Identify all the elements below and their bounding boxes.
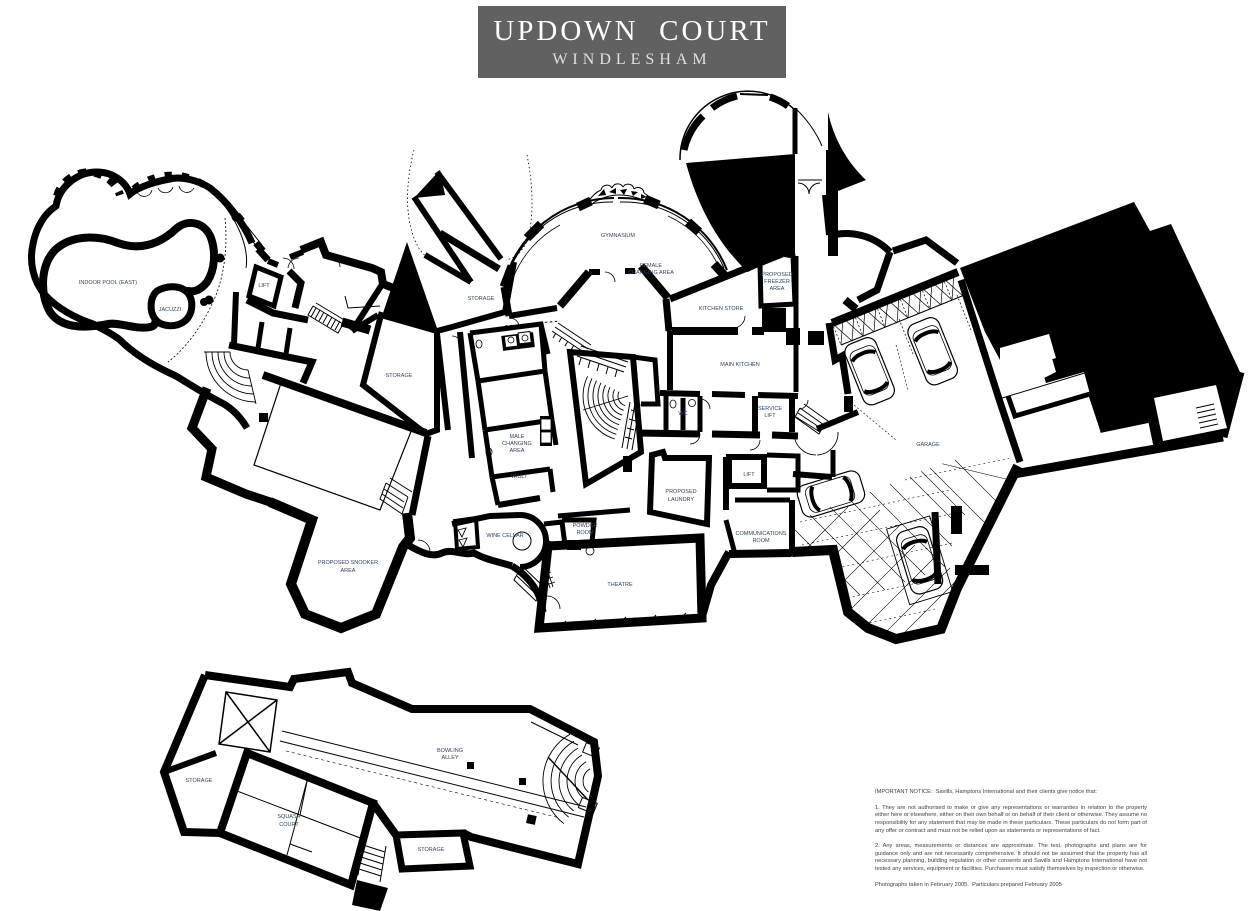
svg-text:VAULT: VAULT xyxy=(511,474,529,480)
svg-text:AREA: AREA xyxy=(770,286,785,292)
svg-text:STORAGE: STORAGE xyxy=(186,778,213,784)
svg-text:JACUZZI: JACUZZI xyxy=(159,307,182,313)
svg-text:POWDER: POWDER xyxy=(573,523,598,529)
svg-text:PROPOSED SNOOKER: PROPOSED SNOOKER xyxy=(318,560,378,566)
svg-text:WC: WC xyxy=(678,411,687,417)
svg-text:STORAGE: STORAGE xyxy=(468,296,495,302)
svg-text:THEATRE: THEATRE xyxy=(607,582,633,588)
svg-text:ROOM: ROOM xyxy=(752,538,770,544)
svg-text:CHANGING AREA: CHANGING AREA xyxy=(628,270,674,276)
svg-text:MALE: MALE xyxy=(510,434,525,440)
svg-text:COURT: COURT xyxy=(279,822,299,828)
svg-text:COMMUNICATIONS: COMMUNICATIONS xyxy=(736,531,787,537)
svg-text:ALLEY: ALLEY xyxy=(441,755,458,761)
svg-text:WINE CELLAR: WINE CELLAR xyxy=(486,533,523,539)
svg-text:FREEZER: FREEZER xyxy=(764,279,790,285)
svg-text:MAIN KITCHEN: MAIN KITCHEN xyxy=(720,362,759,368)
svg-text:KITCHEN STORE: KITCHEN STORE xyxy=(699,306,744,312)
svg-text:PROPOSED: PROPOSED xyxy=(761,272,792,278)
svg-text:LIFT: LIFT xyxy=(743,472,755,478)
svg-text:SERVICE: SERVICE xyxy=(758,406,782,412)
svg-text:PROPOSED: PROPOSED xyxy=(665,489,696,495)
svg-text:GYMNASIUM: GYMNASIUM xyxy=(601,233,635,239)
svg-text:AREA: AREA xyxy=(341,568,356,574)
svg-text:LIFT: LIFT xyxy=(258,283,270,289)
svg-text:AREA: AREA xyxy=(510,448,525,454)
svg-text:BOWLING: BOWLING xyxy=(437,748,463,754)
svg-text:INDOOR POOL (EAST): INDOOR POOL (EAST) xyxy=(79,280,137,286)
svg-text:LIFT: LIFT xyxy=(764,413,776,419)
svg-text:ROOM: ROOM xyxy=(576,530,594,536)
svg-text:FEMALE: FEMALE xyxy=(640,263,662,269)
svg-text:STORAGE: STORAGE xyxy=(386,373,413,379)
svg-text:GARAGE: GARAGE xyxy=(916,442,940,448)
svg-text:CHANGING: CHANGING xyxy=(502,441,532,447)
svg-text:SQUASH: SQUASH xyxy=(277,814,300,820)
svg-text:LAUNDRY: LAUNDRY xyxy=(668,497,695,503)
svg-text:STORAGE: STORAGE xyxy=(418,847,445,853)
